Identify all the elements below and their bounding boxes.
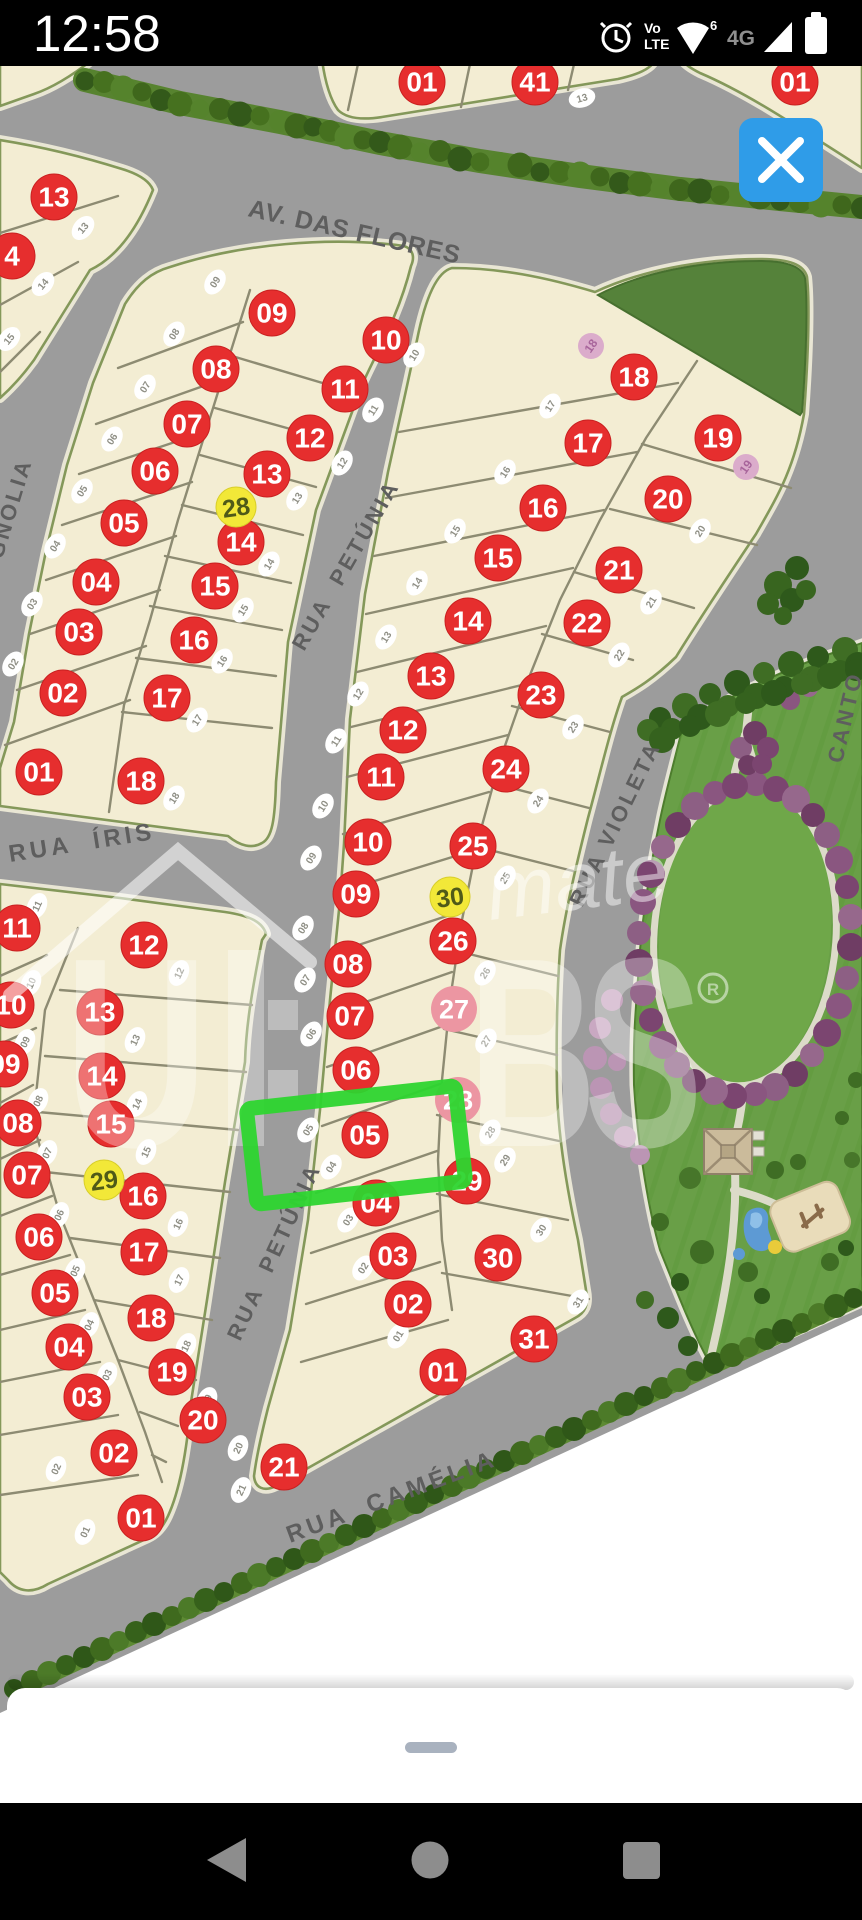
svg-text:11: 11: [330, 374, 360, 405]
svg-text:17: 17: [151, 683, 182, 714]
svg-text:08: 08: [2, 1108, 33, 1139]
svg-text:30: 30: [434, 882, 465, 914]
svg-text:01: 01: [125, 1503, 156, 1534]
svg-text:27: 27: [439, 995, 469, 1025]
svg-text:19: 19: [156, 1357, 187, 1388]
svg-text:17: 17: [572, 428, 603, 459]
svg-text:B: B: [468, 903, 597, 1204]
svg-text:08: 08: [200, 354, 231, 385]
svg-text:05: 05: [349, 1120, 380, 1151]
svg-text:31: 31: [518, 1324, 549, 1355]
svg-text:15: 15: [199, 571, 230, 602]
svg-text:12:58: 12:58: [33, 5, 161, 62]
svg-text:6: 6: [710, 18, 717, 33]
svg-text:21: 21: [268, 1452, 299, 1483]
svg-text:07: 07: [334, 1001, 365, 1032]
svg-text:02: 02: [392, 1289, 423, 1320]
svg-text:LTE: LTE: [644, 36, 669, 52]
svg-text:S: S: [584, 903, 703, 1204]
svg-text:Vo: Vo: [644, 20, 661, 36]
svg-text:01: 01: [427, 1357, 458, 1388]
svg-text:08: 08: [332, 949, 363, 980]
svg-text:U: U: [64, 903, 208, 1204]
svg-text:17: 17: [128, 1237, 159, 1268]
svg-text:09: 09: [340, 879, 371, 910]
svg-text:20: 20: [652, 484, 683, 515]
svg-text:23: 23: [525, 680, 556, 711]
svg-text:41: 41: [519, 67, 550, 98]
svg-text:18: 18: [125, 766, 156, 797]
svg-text:20: 20: [187, 1405, 218, 1436]
svg-text:07: 07: [171, 409, 202, 440]
svg-text:03: 03: [63, 617, 94, 648]
svg-text:01: 01: [779, 67, 810, 98]
svg-text:18: 18: [618, 362, 649, 393]
svg-text:01: 01: [23, 757, 54, 788]
svg-text:13: 13: [251, 459, 282, 490]
svg-text:30: 30: [482, 1243, 513, 1274]
svg-text:24: 24: [490, 754, 522, 785]
svg-text:09: 09: [0, 1049, 21, 1080]
svg-text:11: 11: [2, 913, 32, 944]
svg-text:05: 05: [108, 508, 139, 539]
svg-text:22: 22: [571, 608, 602, 639]
svg-text:06: 06: [23, 1222, 54, 1253]
svg-text:18: 18: [135, 1303, 166, 1334]
svg-text:03: 03: [71, 1382, 102, 1413]
svg-text:06: 06: [340, 1055, 371, 1086]
svg-text:02: 02: [47, 678, 78, 709]
svg-text:21: 21: [603, 555, 634, 586]
svg-text:R: R: [707, 980, 719, 999]
svg-text:10: 10: [352, 827, 383, 858]
svg-text:01: 01: [406, 67, 437, 98]
svg-text:19: 19: [702, 423, 733, 454]
svg-text:12: 12: [294, 423, 325, 454]
svg-text:05: 05: [39, 1278, 70, 1309]
svg-text:06: 06: [139, 456, 170, 487]
svg-text:14: 14: [452, 606, 484, 637]
svg-text:13: 13: [415, 661, 446, 692]
svg-text:15: 15: [482, 543, 513, 574]
svg-text:14: 14: [225, 527, 257, 558]
svg-text:02: 02: [98, 1438, 129, 1469]
svg-text:28: 28: [220, 492, 252, 524]
svg-text:26: 26: [437, 926, 468, 957]
svg-text:4: 4: [4, 241, 20, 272]
svg-text:12: 12: [387, 715, 418, 746]
svg-text:11: 11: [366, 762, 396, 793]
svg-text:04: 04: [53, 1332, 85, 1363]
svg-text:07: 07: [11, 1160, 42, 1191]
svg-text:04: 04: [80, 567, 112, 598]
svg-text:16: 16: [527, 493, 558, 524]
svg-text:4G: 4G: [727, 27, 755, 50]
svg-text:13: 13: [38, 182, 69, 213]
svg-text:03: 03: [377, 1241, 408, 1272]
svg-text:10: 10: [370, 325, 401, 356]
svg-text:16: 16: [178, 625, 209, 656]
svg-text:09: 09: [256, 298, 287, 329]
